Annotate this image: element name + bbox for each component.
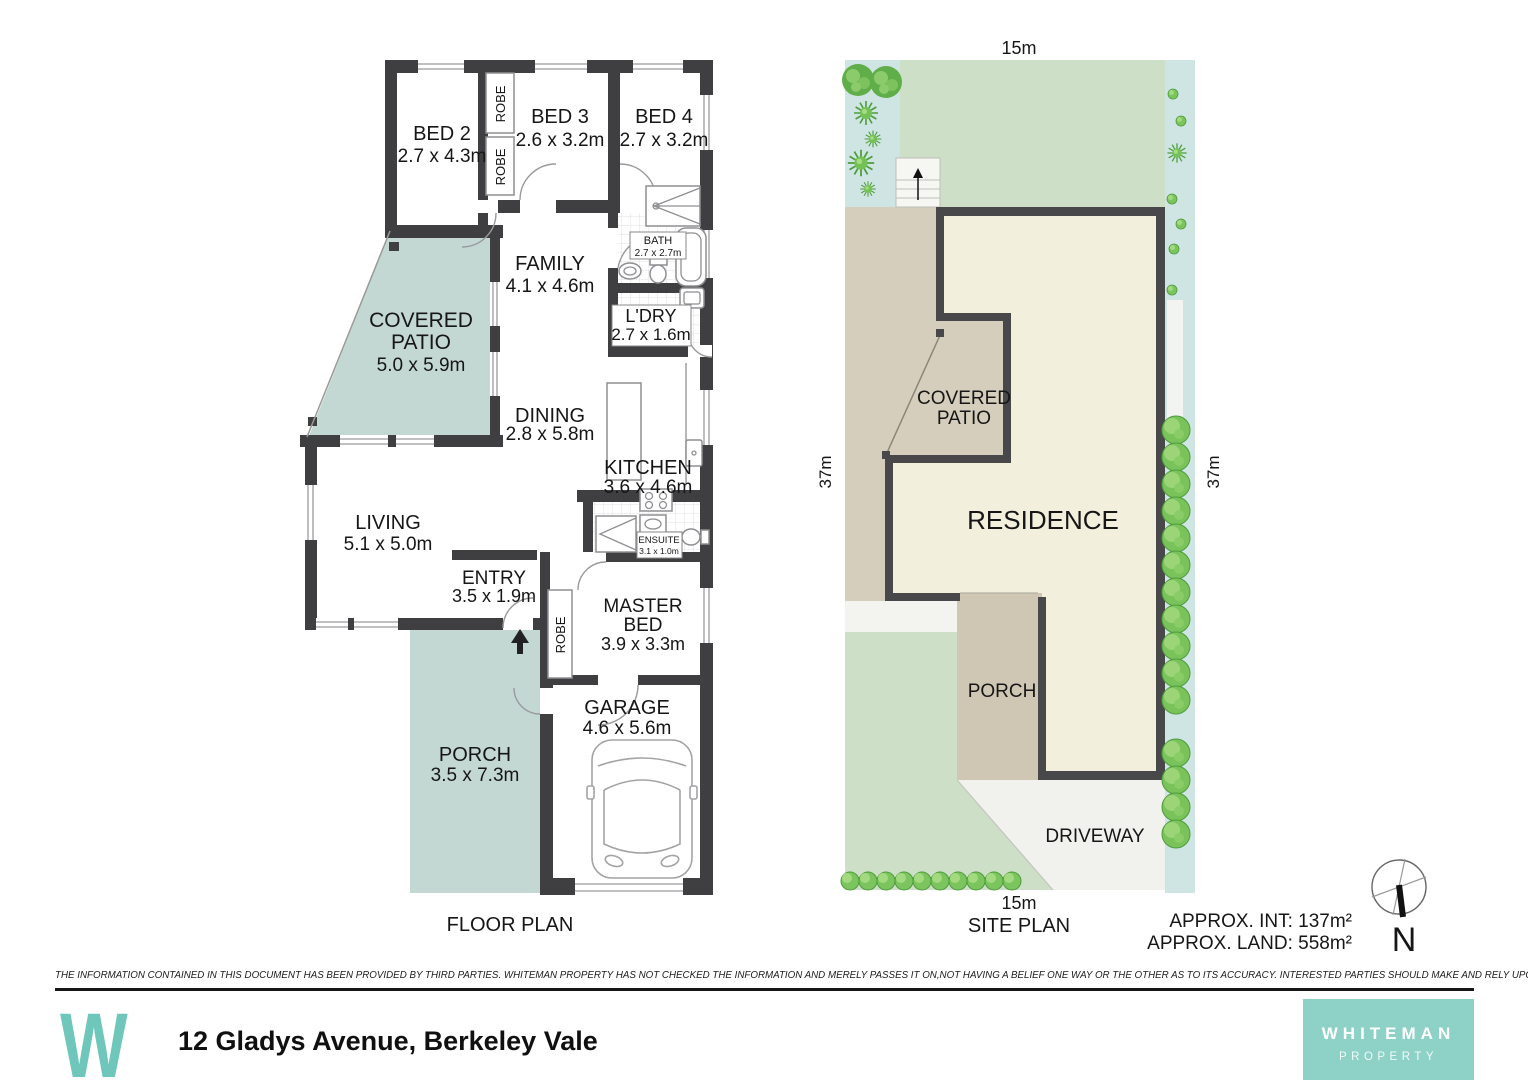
patio-post bbox=[389, 242, 399, 251]
room-label-ensuite: ENSUITE bbox=[638, 535, 679, 546]
site-plan-title: SITE PLAN bbox=[968, 915, 1070, 937]
plans-canvas: BED 2 2.7 x 4.3m BED 3 2.6 x 3.2m BED 4 … bbox=[0, 0, 1528, 962]
site-dim-right: 37m bbox=[1204, 455, 1223, 488]
room-dims-covered-patio: 5.0 x 5.9m bbox=[377, 355, 466, 376]
floorplan-document: BED 2 2.7 x 4.3m BED 3 2.6 x 3.2m BED 4 … bbox=[0, 0, 1528, 1080]
room-dims-master: 3.9 x 3.3m bbox=[601, 634, 685, 654]
room-label-living: LIVING bbox=[355, 512, 421, 534]
floor-plan: BED 2 2.7 x 4.3m BED 3 2.6 x 3.2m BED 4 … bbox=[300, 60, 713, 936]
room-dims-bed2: 2.7 x 4.3m bbox=[398, 146, 487, 167]
room-label-covered-patio-2: PATIO bbox=[391, 331, 451, 354]
site-dim-bottom: 15m bbox=[1001, 893, 1036, 913]
room-label-bath: BATH bbox=[644, 235, 673, 247]
room-label-family: FAMILY bbox=[515, 253, 585, 275]
room-label-garage: GARAGE bbox=[584, 697, 670, 719]
room-dims-porch: 3.5 x 7.3m bbox=[431, 765, 520, 786]
room-label-bed4: BED 4 bbox=[635, 106, 693, 128]
room-dims-living: 5.1 x 5.0m bbox=[344, 534, 433, 555]
compass-icon: N bbox=[1372, 859, 1426, 959]
brand-subtitle: PROPERTY bbox=[1303, 1051, 1474, 1063]
room-dims-ensuite: 3.1 x 1.0m bbox=[639, 546, 679, 556]
room-dims-bed3: 2.6 x 3.2m bbox=[516, 130, 605, 151]
car-icon bbox=[587, 740, 697, 878]
basin-icon bbox=[619, 263, 641, 279]
room-label-covered-patio-1: COVERED bbox=[369, 309, 473, 332]
floor-plan-title: FLOOR PLAN bbox=[447, 914, 574, 936]
site-dim-left: 37m bbox=[816, 455, 835, 488]
robe-label-master: ROBE bbox=[553, 616, 568, 653]
room-dims-garage: 4.6 x 5.6m bbox=[583, 718, 672, 739]
ensuite-basin-icon bbox=[640, 515, 666, 533]
ensuite-shower-icon bbox=[596, 516, 636, 552]
toilet-icon bbox=[650, 258, 667, 283]
site-label-porch: PORCH bbox=[968, 681, 1037, 702]
robe-label-1: ROBE bbox=[493, 85, 508, 122]
siteplan-fills bbox=[845, 60, 1195, 893]
room-dims-family: 4.1 x 4.6m bbox=[506, 276, 595, 297]
room-dims-ldry: 2.7 x 1.6m bbox=[611, 325, 690, 344]
room-dims-entry: 3.5 x 1.9m bbox=[452, 586, 536, 606]
robe-label-2: ROBE bbox=[493, 148, 508, 185]
approx-int-area: APPROX. INT: 137m² bbox=[1169, 911, 1352, 932]
room-label-kitchen: KITCHEN bbox=[604, 457, 692, 479]
approx-land-area: APPROX. LAND: 558m² bbox=[1147, 933, 1352, 954]
site-plan: 15m 15m 37m 37m RESIDENCE COVERED PATIO … bbox=[816, 38, 1223, 937]
site-label-covered-patio-2: PATIO bbox=[937, 408, 991, 429]
footer-divider bbox=[55, 988, 1474, 991]
room-label-master-2: BED bbox=[623, 615, 662, 636]
room-dims-bed4: 2.7 x 3.2m bbox=[620, 130, 709, 151]
room-label-bed3: BED 3 bbox=[531, 106, 589, 128]
site-label-driveway: DRIVEWAY bbox=[1045, 826, 1145, 847]
room-label-master-1: MASTER bbox=[603, 596, 682, 617]
site-stairs bbox=[896, 158, 940, 207]
room-label-bed2: BED 2 bbox=[413, 123, 471, 145]
property-address: 12 Gladys Avenue, Berkeley Vale bbox=[178, 1026, 598, 1057]
room-dims-bath: 2.7 x 2.7m bbox=[635, 248, 682, 259]
brand-badge: WHITEMAN PROPERTY bbox=[1303, 999, 1474, 1080]
room-dims-dining: 2.8 x 5.8m bbox=[506, 424, 595, 445]
area-summary: APPROX. INT: 137m² APPROX. LAND: 558m² bbox=[1147, 911, 1352, 954]
shower-icon bbox=[646, 186, 700, 226]
site-label-covered-patio-1: COVERED bbox=[917, 388, 1011, 409]
disclaimer-text: THE INFORMATION CONTAINED IN THIS DOCUME… bbox=[55, 969, 1528, 981]
compass-north-label: N bbox=[1392, 921, 1417, 959]
site-dim-top: 15m bbox=[1001, 38, 1036, 58]
room-label-porch: PORCH bbox=[439, 744, 511, 766]
room-label-ldry: L'DRY bbox=[625, 306, 676, 326]
brand-w-logo: W bbox=[60, 1000, 128, 1080]
site-label-residence: RESIDENCE bbox=[967, 505, 1119, 535]
brand-name: WHITEMAN bbox=[1303, 1024, 1474, 1044]
ensuite-toilet-icon bbox=[682, 529, 709, 545]
room-dims-kitchen: 3.6 x 4.6m bbox=[604, 477, 693, 498]
